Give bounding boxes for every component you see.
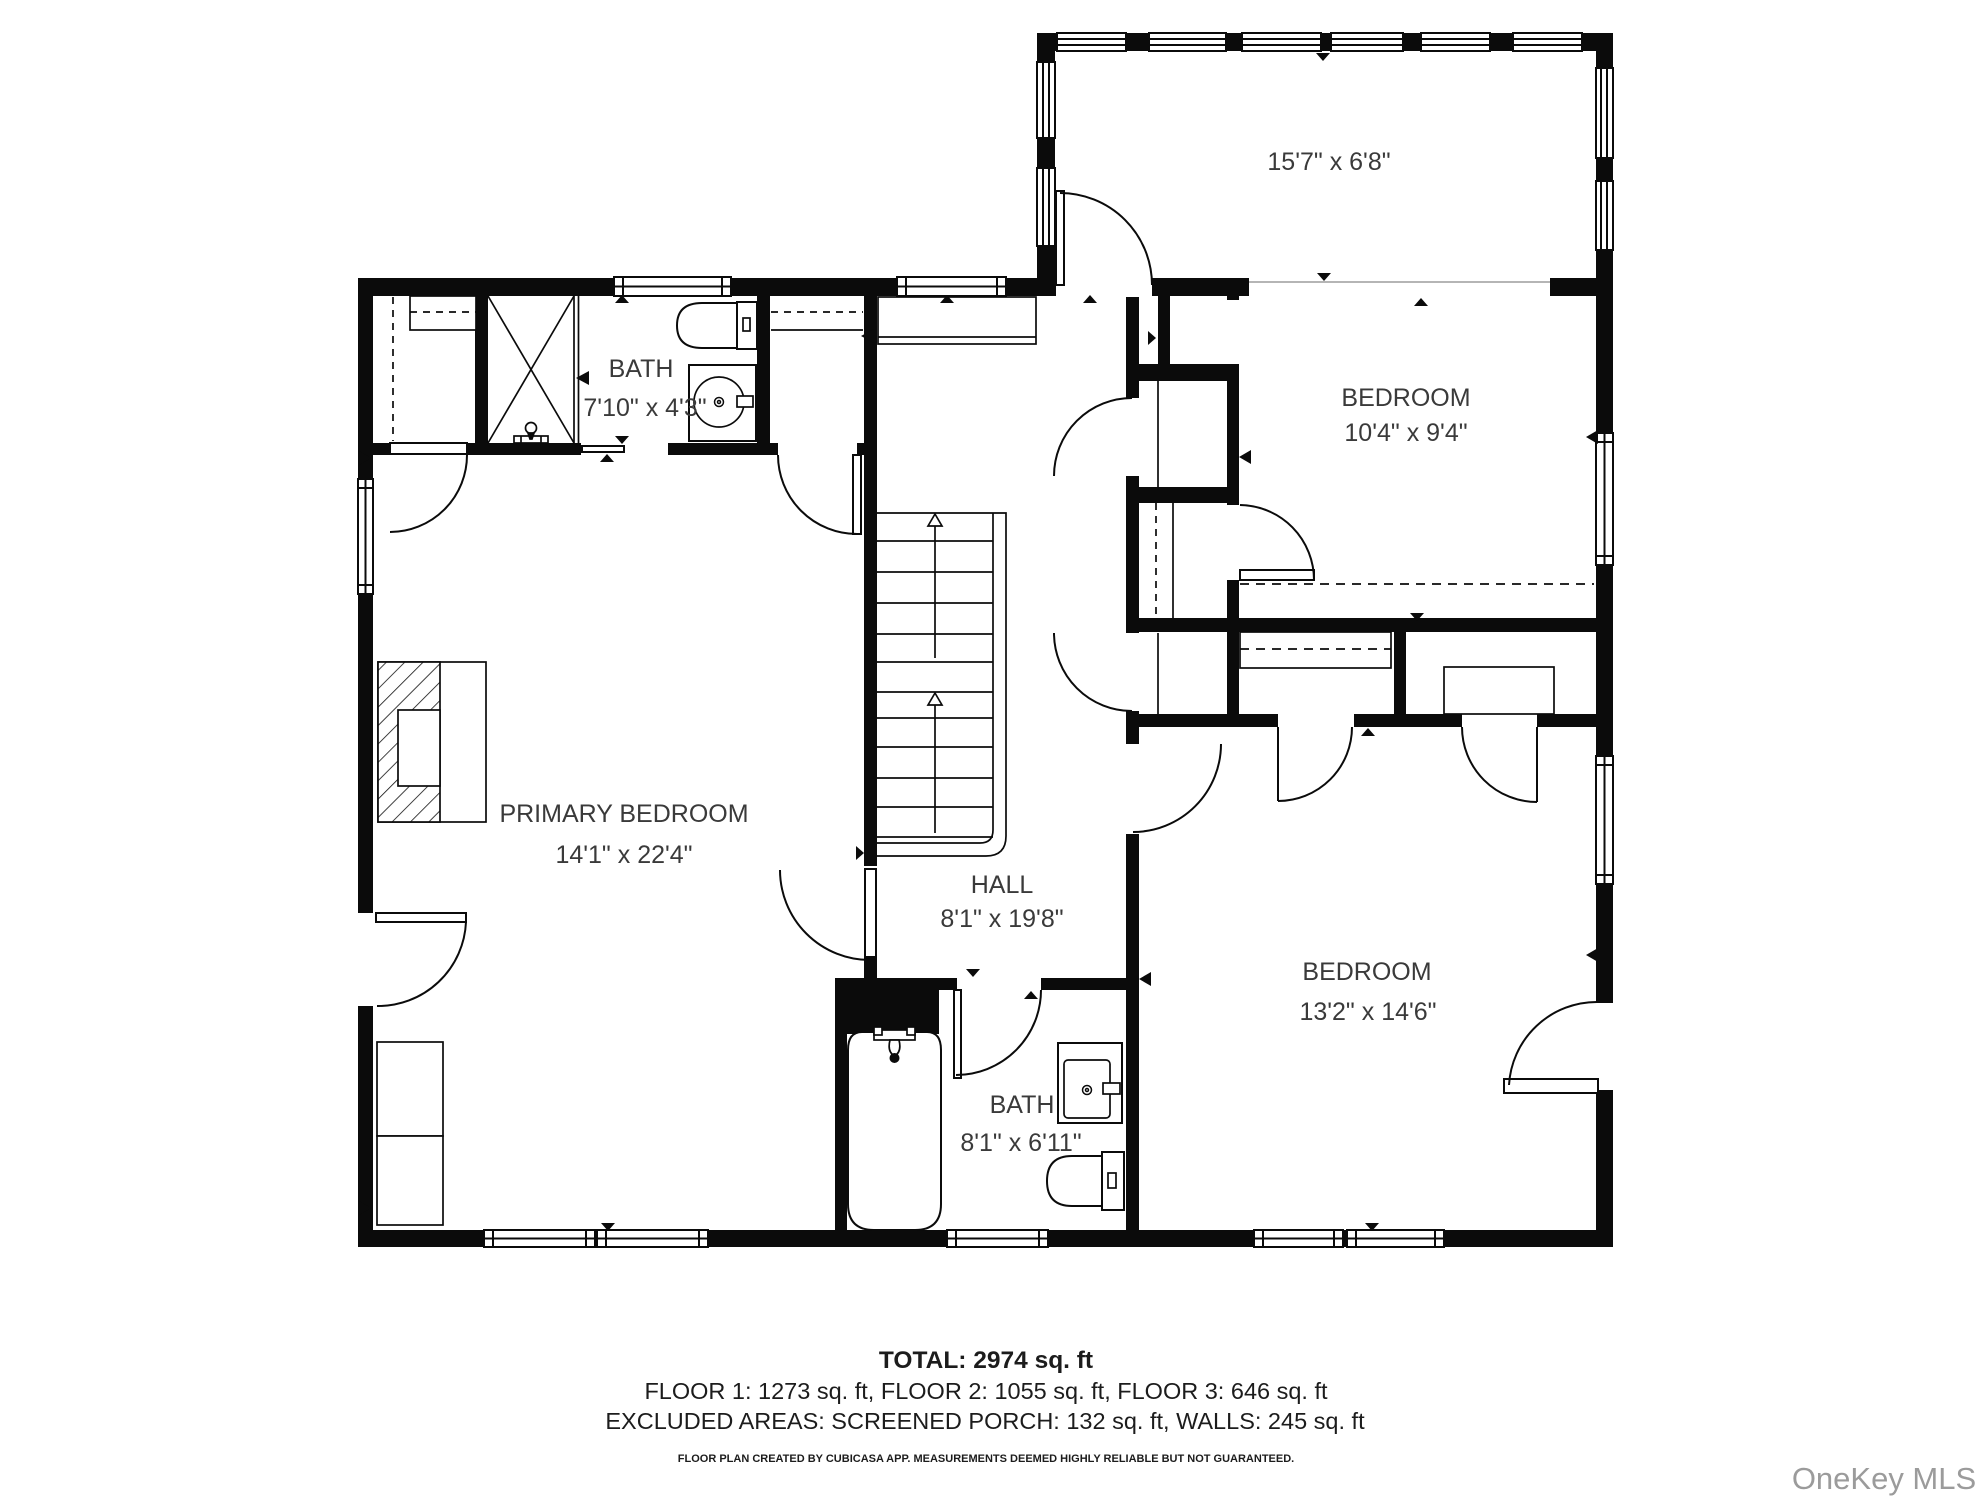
svg-text:15'7" x 6'8": 15'7" x 6'8": [1267, 148, 1390, 176]
svg-text:BEDROOM: BEDROOM: [1302, 958, 1431, 986]
svg-text:10'4" x 9'4": 10'4" x 9'4": [1344, 419, 1467, 447]
svg-text:BEDROOM: BEDROOM: [1341, 384, 1470, 412]
svg-text:EXCLUDED AREAS: SCREENED PORCH: EXCLUDED AREAS: SCREENED PORCH: 132 sq. …: [605, 1408, 1365, 1434]
svg-text:8'1" x 6'11": 8'1" x 6'11": [960, 1129, 1081, 1157]
svg-text:OneKey MLS: OneKey MLS: [1792, 1461, 1976, 1496]
svg-text:BATH: BATH: [990, 1091, 1055, 1119]
svg-text:13'2" x 14'6": 13'2" x 14'6": [1299, 998, 1436, 1026]
svg-text:HALL: HALL: [971, 871, 1034, 899]
svg-text:PRIMARY BEDROOM: PRIMARY BEDROOM: [499, 800, 748, 828]
svg-text:FLOOR 1: 1273 sq. ft, FLOOR 2:: FLOOR 1: 1273 sq. ft, FLOOR 2: 1055 sq. …: [644, 1378, 1328, 1404]
svg-text:7'10" x 4'3": 7'10" x 4'3": [583, 394, 706, 422]
svg-text:FLOOR PLAN CREATED BY CUBICASA: FLOOR PLAN CREATED BY CUBICASA APP. MEAS…: [678, 1453, 1294, 1465]
svg-text:8'1" x 19'8": 8'1" x 19'8": [940, 905, 1063, 933]
svg-text:TOTAL: 2974 sq. ft: TOTAL: 2974 sq. ft: [879, 1347, 1093, 1374]
svg-text:14'1" x 22'4": 14'1" x 22'4": [555, 841, 692, 869]
svg-text:BATH: BATH: [609, 355, 674, 383]
